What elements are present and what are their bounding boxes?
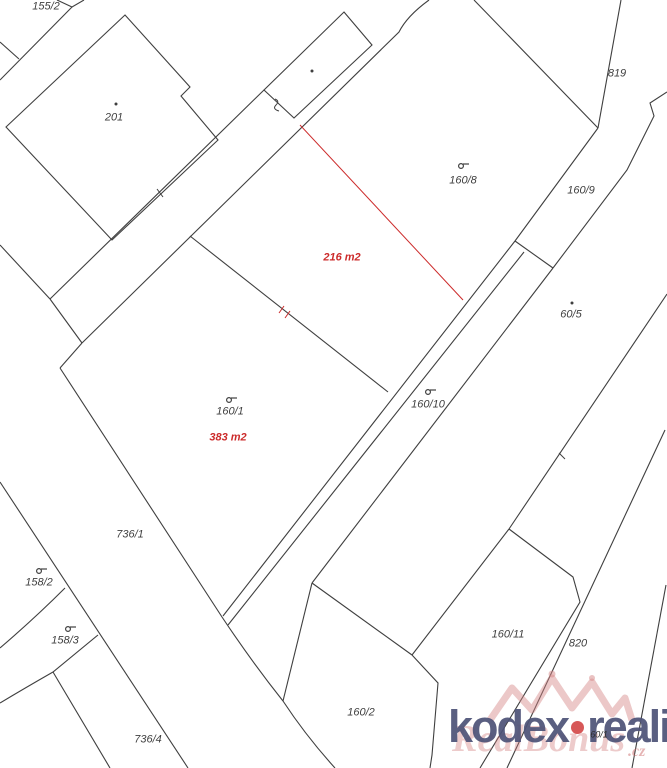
parcel-label: 160/10	[411, 400, 445, 411]
boundary-lines	[0, 0, 667, 768]
parcel-label: 160/11	[492, 630, 525, 641]
parcel-label: 158/3	[51, 636, 79, 647]
parcel-201-outline	[6, 15, 218, 240]
parcel-boundaries	[0, 0, 667, 768]
parcel-label: 820	[569, 639, 587, 650]
building-outline	[264, 12, 372, 118]
building-point-dot	[115, 103, 118, 106]
agency-watermark: RealBonus .cz kodexreality	[440, 682, 667, 768]
parcel-label: 155/2	[32, 2, 60, 13]
cadastral-map[interactable]: 155/2201819160/8160/960/5160/1160/10736/…	[0, 0, 667, 768]
parcel-label: 160/2	[347, 708, 375, 719]
agency-brand-text: kodexreality	[448, 704, 667, 749]
building-point-dot	[571, 302, 574, 305]
red-measure-line	[300, 125, 463, 300]
land-use-symbol-icon	[227, 398, 237, 403]
land-use-symbol-icon	[459, 164, 469, 169]
symbol-layer	[37, 70, 574, 632]
tick-mark	[559, 453, 565, 459]
parcel-label: 819	[608, 69, 626, 80]
area-measurement-label: 216 m2	[323, 253, 360, 264]
parcel-label: 158/2	[25, 578, 53, 589]
land-use-symbol-icon	[426, 390, 436, 395]
parcel-label: 160/9	[567, 186, 595, 197]
parcel-label-60-1: 60/1	[590, 731, 608, 740]
brand-right: reality	[587, 701, 667, 752]
parcel-label: 201	[105, 113, 123, 124]
parcel-label: 60/5	[560, 310, 581, 321]
building-point-dot	[311, 70, 314, 73]
brand-left: kodex	[448, 701, 568, 752]
parcel-label: 736/1	[116, 530, 144, 541]
parcel-label: 160/8	[449, 176, 477, 187]
parcel-label: 160/1	[216, 407, 244, 418]
land-use-symbol-icon	[37, 569, 47, 574]
land-use-symbol-icon	[66, 627, 76, 632]
brand-separator-dot	[571, 721, 584, 734]
road-line-east	[228, 252, 524, 625]
parcel-label: 736/4	[134, 735, 162, 746]
area-measurement-label: 383 m2	[209, 433, 246, 444]
measurement-overlay	[279, 125, 463, 318]
road-line-west	[223, 128, 598, 616]
